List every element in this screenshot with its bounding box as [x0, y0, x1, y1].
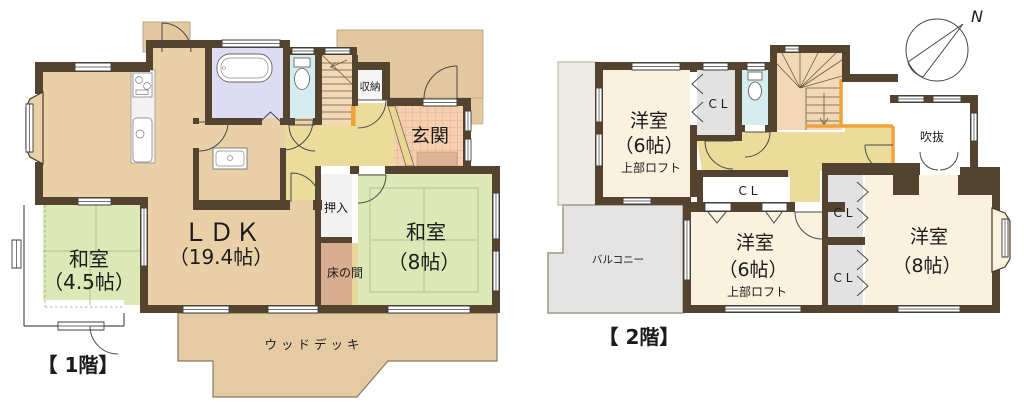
washitsu45-size: （4.5帖）: [43, 270, 135, 294]
yoshitsu6-s-label: 洋室: [736, 232, 774, 254]
ldk-label: ＬＤＫ: [183, 218, 261, 247]
bathtub-icon: [217, 54, 272, 82]
storage-label: 収納: [360, 80, 381, 93]
room-yoshitsu6-nw: [603, 70, 690, 197]
toilet-icon-1f: [294, 58, 310, 90]
floor2-label: 【 2階】: [599, 325, 680, 349]
genkan-label: 玄関: [411, 125, 449, 147]
tokonoma-label: 床の間: [327, 266, 363, 280]
washitsu45-label: 和室: [69, 247, 109, 271]
closet-a-label: C L: [834, 206, 853, 220]
toilet-icon-2f: [748, 72, 762, 100]
yoshitsu8-label: 洋室: [910, 226, 948, 248]
north-label: N: [971, 7, 983, 26]
fukinuke-label: 吹抜: [920, 130, 944, 144]
closet-b-label: C L: [834, 271, 853, 285]
wood-deck: [178, 313, 497, 397]
washitsu8-size: （8帖）: [388, 250, 461, 274]
oshiire-label: 押入: [324, 201, 348, 215]
vanity-sink-icon: [213, 148, 247, 169]
floor-plan-image: ＬＤＫ （19.4帖） 和室 （4.5帖） 和室 （8帖） 玄関 収納 押入 床…: [0, 0, 1024, 405]
stairs-1f: [322, 55, 352, 126]
compass-icon: N: [906, 7, 983, 81]
kitchen-sink-icon: [133, 118, 152, 162]
wood-deck-label: ウッドデッキ: [264, 337, 363, 352]
roof-eaves: [558, 62, 597, 205]
kitchen-counter-icon: [131, 70, 155, 163]
yoshitsu6-nw-size: （6帖）: [614, 135, 683, 157]
floor1-plan: ＬＤＫ （19.4帖） 和室 （4.5帖） 和室 （8帖） 玄関 収納 押入 床…: [12, 22, 500, 397]
french-door: [920, 152, 958, 170]
stairs-2f: [777, 53, 842, 130]
closet-nw-label: C L: [709, 97, 728, 111]
balcony-label: バルコニー: [592, 254, 644, 266]
washitsu8-label: 和室: [406, 220, 446, 244]
floor2-plan: N 洋室 （6帖） 上部ロフト C L 洋室 （6帖） 上部ロフト C L C …: [548, 7, 1010, 349]
floor-plan-svg: ＬＤＫ （19.4帖） 和室 （4.5帖） 和室 （8帖） 玄関 収納 押入 床…: [0, 0, 1024, 405]
genkan-step: [417, 152, 457, 166]
yoshitsu8-size: （8帖）: [892, 255, 961, 277]
yoshitsu6-s-size: （6帖）: [718, 259, 787, 281]
ldk-size: （19.4帖）: [169, 245, 274, 269]
yoshitsu6-nw-label: 洋室: [630, 110, 668, 132]
closet-s-label: C L: [739, 184, 758, 198]
floor1-label: 【 1階】: [38, 353, 119, 377]
stair-railing-1f: [351, 106, 356, 126]
yoshitsu6-s-loft: 上部ロフト: [727, 284, 787, 299]
yoshitsu6-nw-loft: 上部ロフト: [621, 160, 681, 175]
